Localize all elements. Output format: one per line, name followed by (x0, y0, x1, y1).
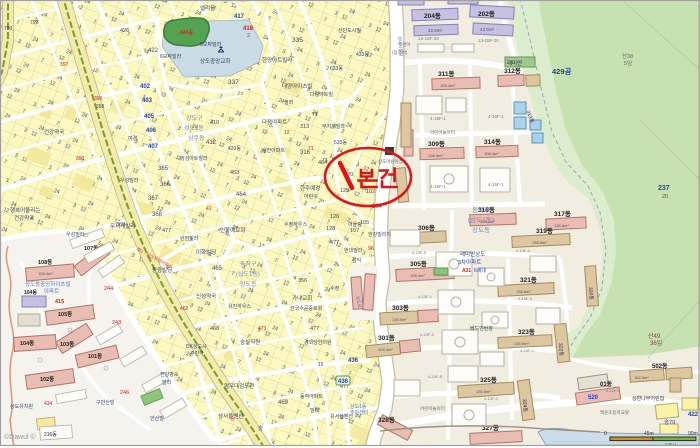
svg-text:243: 243 (112, 320, 121, 326)
svg-text:104동: 104동 (24, 289, 37, 296)
svg-text:13-15F-20: 13-15F-20 (418, 36, 439, 41)
svg-text:477: 477 (162, 228, 171, 234)
svg-text:477: 477 (330, 240, 339, 246)
svg-text:317동: 317동 (554, 210, 571, 218)
svg-text:533동: 533동 (334, 140, 347, 146)
svg-text:다정아파트: 다정아파트 (262, 118, 287, 126)
svg-text:동작구: 동작구 (472, 205, 490, 214)
svg-text:우성빌라: 우성빌라 (66, 231, 85, 238)
svg-text:A31: A31 (462, 268, 471, 274)
svg-text:(상도1동): (상도1동) (468, 215, 494, 224)
svg-text:상도동: 상도동 (472, 225, 490, 234)
svg-text:상도1동: 상도1동 (350, 403, 367, 410)
svg-text:520: 520 (588, 395, 599, 401)
svg-text:105동: 105동 (58, 310, 72, 318)
svg-text:숭실직원: 숭실직원 (240, 338, 260, 346)
svg-text:상도어린이집: 상도어린이집 (378, 158, 403, 165)
svg-text:125: 125 (340, 188, 349, 194)
svg-text:건강약국: 건강약국 (14, 214, 34, 222)
svg-text:366: 366 (160, 182, 171, 188)
svg-text:367: 367 (148, 196, 159, 202)
svg-text:108동: 108동 (38, 258, 52, 266)
svg-text:412: 412 (206, 140, 217, 146)
svg-text:이성아트빌라: 이성아트빌라 (180, 155, 208, 162)
svg-text:319동: 319동 (536, 227, 553, 235)
svg-text:204동: 204동 (424, 12, 441, 20)
svg-text:436: 436 (348, 358, 359, 364)
svg-text:DK상도시: DK상도시 (186, 343, 207, 350)
svg-text:우성빌라: 우성빌라 (120, 177, 139, 184)
svg-text:아파트: 아파트 (44, 287, 59, 295)
svg-text:108.4m²: 108.4m² (38, 271, 53, 276)
svg-text:한강빌리지: 한강빌리지 (368, 231, 391, 238)
svg-text:396: 396 (94, 96, 103, 102)
svg-text:469: 469 (278, 400, 289, 406)
svg-text:306동: 306동 (418, 224, 435, 232)
svg-text:464: 464 (318, 160, 327, 166)
svg-text:어린이놀이터: 어린이놀이터 (430, 129, 455, 136)
svg-text:126: 126 (330, 214, 339, 220)
svg-text:산49: 산49 (648, 332, 661, 340)
svg-text:90m: 90m (688, 431, 698, 437)
svg-text:313: 313 (300, 124, 309, 130)
svg-text:래미안: 래미안 (507, 59, 522, 67)
svg-text:477: 477 (310, 326, 319, 332)
svg-text:369: 369 (116, 222, 125, 228)
svg-text:103동: 103동 (60, 340, 74, 348)
svg-text:6모짜빌라: 6모짜빌라 (160, 53, 182, 60)
svg-text:426: 426 (120, 28, 129, 34)
svg-text:상환나무어린집: 상환나무어린집 (632, 395, 664, 402)
svg-text:415: 415 (55, 299, 64, 305)
svg-text:244: 244 (104, 286, 113, 292)
svg-text:356: 356 (298, 278, 307, 284)
svg-text:45m: 45m (644, 431, 654, 437)
svg-text:숭: 숭 (258, 425, 263, 432)
svg-text:323동: 323동 (518, 328, 535, 336)
svg-text:4-15F-1: 4-15F-1 (488, 114, 504, 119)
svg-text:4-15F-5: 4-15F-5 (412, 250, 427, 255)
svg-text:무지개빌라: 무지개빌라 (322, 123, 345, 130)
svg-text:403: 403 (142, 98, 153, 104)
svg-text:301동: 301동 (378, 334, 395, 342)
svg-text:108.4m²: 108.4m² (484, 151, 499, 156)
svg-text:4-15F-1: 4-15F-1 (488, 182, 504, 187)
svg-text:6세대: 6세대 (474, 267, 486, 274)
svg-text:410: 410 (210, 120, 219, 126)
svg-text:368: 368 (152, 212, 163, 218)
svg-text:135.9m²: 135.9m² (392, 317, 407, 322)
svg-text:42.9m²: 42.9m² (428, 28, 443, 33)
svg-text:삼익: 삼익 (352, 257, 361, 264)
svg-text:한양아트빌라: 한양아트빌라 (262, 56, 292, 64)
svg-text:405: 405 (144, 114, 155, 120)
svg-text:107: 107 (350, 228, 359, 234)
svg-text:2: 2 (247, 33, 250, 39)
svg-text:대양아이츠빌: 대양아이츠빌 (282, 82, 312, 90)
svg-text:322동: 322동 (557, 343, 564, 357)
svg-text:135.9m²: 135.9m² (476, 389, 491, 394)
svg-text:어린이: 어린이 (304, 193, 318, 200)
svg-text:429공: 429공 (552, 67, 572, 76)
svg-text:202동: 202동 (478, 10, 495, 18)
svg-text:792: 792 (30, 20, 39, 26)
svg-text:이화빌딩: 이화빌딩 (196, 248, 216, 256)
svg-text:현대빌라: 현대빌라 (344, 247, 363, 254)
svg-text:462: 462 (180, 306, 189, 312)
svg-text:42.9m²: 42.9m² (480, 27, 495, 32)
svg-text:건강약국: 건강약국 (44, 128, 64, 136)
svg-text:138.8m²: 138.8m² (554, 223, 569, 228)
svg-text:108.4m²: 108.4m² (440, 83, 455, 88)
svg-text:안산빌: 안산빌 (150, 415, 164, 422)
svg-text:행복어울리는: 행복어울리는 (10, 206, 40, 214)
svg-text:13-15F-20: 13-15F-20 (478, 38, 499, 43)
svg-text:4-13F-1: 4-13F-1 (418, 294, 433, 299)
svg-text:406: 406 (146, 128, 157, 134)
svg-text:138.8m²: 138.8m² (532, 240, 547, 245)
svg-text:314동: 314동 (484, 138, 501, 146)
svg-text:417: 417 (234, 14, 245, 20)
svg-text:송79: 송79 (664, 418, 675, 426)
svg-text:328동: 328동 (378, 416, 395, 424)
svg-text:5임: 5임 (624, 59, 632, 67)
svg-text:4-15F-5: 4-15F-5 (428, 374, 443, 379)
svg-text:어린이놀이터: 어린이놀이터 (420, 405, 445, 412)
svg-text:96: 96 (368, 246, 374, 252)
svg-text:390: 390 (76, 156, 85, 162)
svg-text:418: 418 (243, 26, 254, 32)
svg-text:빌라: 빌라 (310, 407, 320, 414)
svg-text:4-15F-1: 4-15F-1 (430, 184, 446, 189)
svg-text:473: 473 (258, 326, 267, 332)
svg-text:465: 465 (212, 266, 223, 272)
svg-text:303동: 303동 (392, 304, 409, 312)
svg-text:311동: 311동 (438, 70, 454, 78)
svg-text:402: 402 (140, 84, 151, 90)
svg-text:(상도1동): (상도1동) (236, 270, 260, 278)
svg-text:4-15F-1: 4-15F-1 (430, 116, 446, 121)
svg-text:790: 790 (4, 26, 13, 32)
svg-text:397: 397 (60, 62, 69, 68)
svg-text:주민센터: 주민센터 (350, 409, 368, 416)
svg-text:인불예교회: 인불예교회 (220, 226, 245, 234)
svg-text:436: 436 (338, 379, 349, 385)
svg-text:102동: 102동 (40, 375, 54, 383)
svg-text:434: 434 (44, 401, 53, 407)
svg-text:337: 337 (228, 79, 239, 86)
svg-text:경희당한의원: 경희당한의원 (304, 339, 332, 346)
svg-text:발라: 발라 (162, 379, 172, 386)
svg-text:삼무동: 삼무동 (188, 134, 205, 142)
svg-text:309동: 309동 (428, 140, 445, 148)
svg-text:41: 41 (206, 206, 212, 212)
svg-text:398: 398 (96, 104, 105, 110)
svg-text:한강병숙: 한강병숙 (160, 371, 179, 378)
svg-text:4-15F-1: 4-15F-1 (520, 348, 535, 353)
svg-text:엘리움: 엘리움 (200, 4, 215, 12)
svg-text:한국수공증로회: 한국수공증로회 (290, 305, 322, 312)
svg-text:246: 246 (120, 390, 129, 396)
svg-text:321동: 321동 (520, 276, 537, 284)
svg-text:216동: 216동 (44, 432, 57, 438)
svg-text:주민악: 주민악 (190, 350, 204, 357)
svg-text:신성약국: 신성약국 (196, 292, 216, 300)
svg-text:가나교회: 가나교회 (292, 294, 312, 302)
svg-text:4-13F-1: 4-13F-1 (484, 396, 499, 401)
svg-text:12: 12 (284, 130, 290, 136)
svg-text:128: 128 (326, 226, 335, 232)
svg-text:305동: 305동 (410, 260, 427, 268)
svg-text:101동: 101동 (88, 352, 102, 360)
svg-text:422: 422 (148, 48, 159, 54)
svg-text:필라: 필라 (284, 99, 294, 106)
svg-text:433동: 433동 (356, 52, 369, 58)
svg-text:숭: 숭 (230, 415, 235, 422)
svg-text:새한아파트: 새한아파트 (262, 147, 285, 154)
svg-text:324동: 324동 (521, 399, 528, 413)
svg-text:424공: 424공 (180, 29, 193, 36)
svg-text:다성아트빌: 다성아트빌 (310, 91, 333, 98)
svg-text:433동: 433동 (228, 146, 241, 152)
svg-text:동작구: 동작구 (240, 261, 257, 268)
svg-text:104동: 104동 (20, 339, 34, 347)
svg-text:2-13F-2: 2-13F-2 (516, 248, 531, 253)
svg-text:312동: 312동 (504, 67, 521, 75)
svg-text:633동: 633동 (330, 66, 343, 72)
svg-text:베드민턴장: 베드민턴장 (470, 325, 493, 332)
svg-text:108.4m²: 108.4m² (410, 273, 425, 278)
svg-text:성도1동: 성도1동 (184, 124, 204, 132)
svg-text:102: 102 (366, 189, 375, 195)
svg-text:108.4m²: 108.4m² (378, 347, 393, 352)
svg-text:108.4m²: 108.4m² (428, 153, 443, 158)
svg-text:01동: 01동 (600, 380, 613, 388)
svg-text:염우대검도관: 염우대검도관 (224, 382, 254, 390)
svg-text:2-13F-1: 2-13F-1 (420, 332, 435, 337)
svg-text:4-15F-3: 4-15F-3 (518, 296, 533, 301)
svg-text:464: 464 (236, 192, 247, 198)
svg-text:한주예경: 한주예경 (300, 184, 320, 192)
svg-text:상도유치원: 상도유치원 (10, 403, 33, 410)
svg-text:152.3m²: 152.3m² (634, 375, 649, 380)
svg-text:36임: 36임 (650, 339, 662, 347)
svg-text:백운초등학교앞: 백운초등학교앞 (600, 409, 629, 416)
svg-text:동작아파트: 동작아파트 (300, 393, 323, 400)
svg-text:©Dawul ©: ©Dawul © (4, 433, 37, 441)
svg-text:래미안상도: 래미안상도 (460, 250, 485, 258)
svg-text:320동: 320동 (587, 287, 594, 301)
svg-text:468: 468 (210, 326, 219, 332)
svg-text:71: 71 (312, 112, 318, 118)
svg-text:산단도시빌: 산단도시빌 (338, 27, 361, 34)
svg-text:453: 453 (230, 170, 239, 176)
svg-text:여경: 여경 (128, 135, 137, 142)
svg-text:3-12F-4: 3-12F-4 (606, 388, 621, 393)
svg-text:20: 20 (662, 194, 668, 200)
svg-text:상도동: 상도동 (240, 280, 257, 288)
svg-text:상도중앙교회: 상도중앙교회 (200, 57, 230, 65)
svg-text:구안산빌: 구안산빌 (96, 399, 115, 406)
svg-text:6모짜빌라: 6모짜빌라 (200, 41, 222, 48)
svg-text:422: 422 (688, 412, 699, 418)
svg-text:15: 15 (318, 362, 324, 368)
svg-text:71: 71 (308, 146, 314, 152)
svg-text:502동: 502동 (652, 362, 668, 370)
svg-text:237: 237 (658, 185, 670, 192)
svg-text:유진하우스: 유진하우스 (228, 303, 251, 310)
svg-text:335: 335 (292, 37, 303, 44)
svg-text:산38: 산38 (622, 52, 633, 60)
svg-text:3차아파트: 3차아파트 (458, 258, 481, 266)
svg-text:365: 365 (158, 166, 169, 172)
svg-text:407: 407 (148, 144, 159, 150)
svg-text:수정: 수정 (330, 285, 339, 292)
svg-text:안암빌라: 안암빌라 (180, 235, 199, 242)
svg-text:138.8m²: 138.8m² (516, 289, 531, 294)
svg-text:105: 105 (360, 220, 369, 226)
svg-text:0: 0 (604, 431, 607, 437)
svg-text:상도동중앙하이츠빌: 상도동중앙하이츠빌 (25, 280, 71, 288)
svg-text:수정하우스: 수정하우스 (284, 221, 307, 228)
svg-text:325동: 325동 (480, 376, 497, 384)
svg-text:135.9m²: 135.9m² (514, 341, 529, 346)
svg-text:상도구: 상도구 (186, 114, 203, 122)
